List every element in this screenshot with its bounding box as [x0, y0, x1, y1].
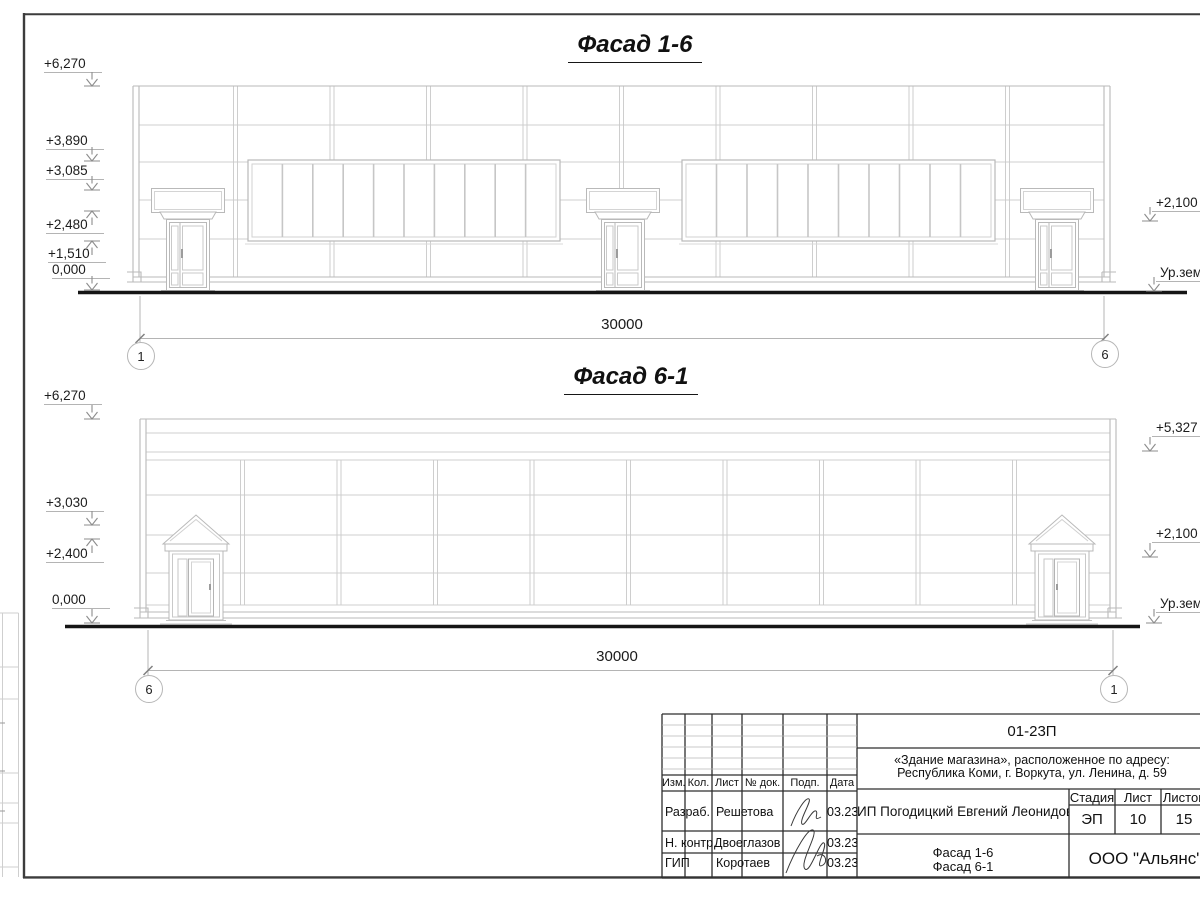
view-title-text: Фасад 6-1 [564, 363, 699, 395]
left-edge-strip [0, 613, 19, 877]
stage-label: Стадия [1069, 790, 1115, 805]
overall-dimension-f16: 30000 [572, 316, 672, 333]
level-marker-down-icon [84, 176, 100, 191]
signature-razrab [791, 799, 821, 826]
client-name: ИП Погодицкий Евгений Леонидович [857, 804, 1069, 819]
sheet-label: Лист [1115, 790, 1161, 805]
view-title-facade-1-6: Фасад 1-6 [70, 31, 1200, 63]
axis-bubble: 1 [1100, 675, 1128, 703]
sheets-label: Листов [1161, 790, 1200, 805]
col-header-podp: Подп. [783, 777, 827, 789]
row-name: Двоеглазов [714, 836, 784, 850]
col-header-kol: Кол. [685, 777, 712, 789]
axis-number: 1 [1110, 682, 1117, 697]
level-marker-down-icon [84, 405, 100, 420]
view-title-facade-6-1: Фасад 6-1 [66, 363, 1196, 395]
strip-window-right [679, 160, 998, 244]
col-header-list: Лист [712, 777, 742, 789]
col-header-izm: Изм. [662, 777, 685, 789]
row-date: 03.23 [827, 856, 857, 870]
row-name: Решетова [716, 805, 782, 819]
col-header-data: Дата [827, 777, 857, 789]
signature-gip [786, 830, 826, 873]
level-marker-down-icon [1142, 437, 1158, 452]
project-address-line2: Республика Коми, г. Воркута, ул. Ленина,… [857, 766, 1200, 780]
sheet-title-line1: Фасад 1-6 [857, 845, 1069, 860]
level-marker-down-icon [84, 511, 100, 526]
sheets-value: 15 [1161, 811, 1200, 828]
level-marker-down-icon [1146, 277, 1162, 292]
level-marker-up-icon [84, 538, 100, 553]
sheet-title-line2: Фасад 6-1 [857, 859, 1069, 874]
col-header-dok: № док. [742, 777, 783, 789]
elevation-label: +5,327 [1152, 420, 1200, 437]
level-marker-down-icon [84, 72, 100, 87]
row-date: 03.23 [827, 836, 857, 850]
doc-number: 01-23П [857, 723, 1200, 740]
axis-bubble: 6 [1091, 340, 1119, 368]
elevation-label: Ур.зем [1156, 265, 1200, 282]
elevation-label: +2,100 [1152, 526, 1200, 543]
view-title-text: Фасад 1-6 [568, 31, 703, 63]
gable-door-right [1026, 515, 1098, 624]
gable-door-left [160, 515, 232, 624]
elevation-label: 0,000 [52, 262, 110, 279]
level-marker-down-icon [84, 147, 100, 162]
sheet-value: 10 [1115, 811, 1161, 828]
row-role: ГИП [665, 856, 711, 870]
elevation-label: +6,270 [44, 56, 102, 73]
strip-window-left [245, 160, 563, 244]
level-marker-up-icon [84, 240, 100, 255]
level-marker-down-icon [1142, 543, 1158, 558]
stage-value: ЭП [1069, 811, 1115, 828]
level-marker-down-icon [1146, 609, 1162, 624]
level-marker-down-icon [84, 276, 100, 291]
level-marker-up-icon [84, 210, 100, 225]
elevation-label: 0,000 [52, 592, 110, 609]
overall-dimension-f61: 30000 [567, 648, 667, 665]
project-address-line1: «Здание магазина», расположенное по адре… [857, 753, 1200, 767]
level-marker-down-icon [1142, 207, 1158, 222]
facade-1-6-drawing [78, 86, 1187, 343]
axis-bubble: 6 [135, 675, 163, 703]
row-date: 03.23 [827, 805, 857, 819]
elevation-label: +3,030 [46, 495, 104, 512]
level-marker-down-icon [84, 609, 100, 624]
axis-number: 6 [145, 682, 152, 697]
axis-number: 6 [1101, 347, 1108, 362]
drawing-sheet: { "views": { "f16": { "title": "Фасад 1-… [0, 0, 1200, 900]
elevation-label: +2,100 [1152, 195, 1200, 212]
row-role: Н. контр. [665, 836, 715, 850]
organization-name: ООО "Альянс" [1069, 849, 1200, 869]
row-name: Коротаев [716, 856, 782, 870]
facade-6-1-drawing [65, 419, 1140, 675]
axis-bubble: 1 [127, 342, 155, 370]
axis-number: 1 [137, 349, 144, 364]
elevation-label: Ур.зем [1156, 596, 1200, 613]
row-role: Разраб. [665, 805, 711, 819]
elevation-label: +6,270 [44, 388, 102, 405]
